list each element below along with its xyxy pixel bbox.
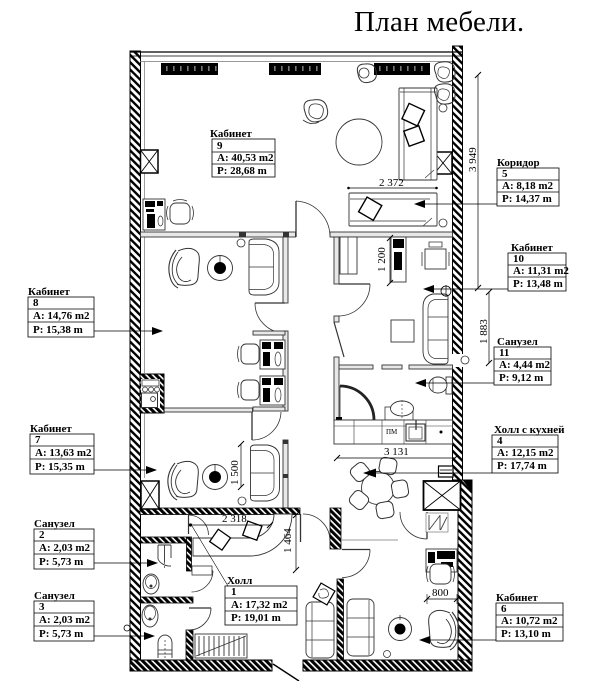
svg-text:1 200: 1 200 [376,247,388,272]
svg-text:Холл с кухней: Холл с кухней [494,424,565,436]
svg-text:Кабинет: Кабинет [210,128,252,140]
svg-text:A: 11,31 m2: A: 11,31 m2 [513,265,569,277]
svg-text:1 464: 1 464 [282,528,294,553]
svg-text:P: 13,48 m: P: 13,48 m [513,278,563,290]
svg-text:A: 17,32 m2: A: 17,32 m2 [231,599,288,611]
svg-text:2: 2 [39,529,45,541]
svg-text:5: 5 [502,168,508,180]
svg-text:P: 14,37 m: P: 14,37 m [502,193,552,205]
svg-text:4: 4 [497,435,503,447]
svg-text:A: 12,15 m2: A: 12,15 m2 [497,447,554,459]
svg-text:P: 13,10 m: P: 13,10 m [501,628,551,640]
svg-text:P: 9,12 m: P: 9,12 m [499,372,543,384]
svg-text:A: 8,18 m2: A: 8,18 m2 [502,180,554,192]
svg-text:A: 2,03 m2: A: 2,03 m2 [39,614,91,626]
svg-text:P: 15,35 m: P: 15,35 m [35,461,85,473]
svg-text:A: 13,63 m2: A: 13,63 m2 [35,447,92,459]
svg-text:P: 28,68 m: P: 28,68 m [217,165,267,177]
svg-text:A: 10,72 m2: A: 10,72 m2 [501,615,558,627]
svg-text:2 372: 2 372 [379,177,404,189]
svg-text:ПМ: ПМ [386,428,398,436]
svg-text:3 949: 3 949 [467,147,479,172]
svg-text:3 131: 3 131 [384,446,409,458]
svg-text:800: 800 [432,587,449,599]
svg-text:A: 40,53 m2: A: 40,53 m2 [217,152,274,164]
svg-text:7: 7 [35,434,41,446]
svg-text:A: 4,44 m2: A: 4,44 m2 [499,359,551,371]
svg-text:3: 3 [39,601,45,613]
svg-text:P: 19,01 m: P: 19,01 m [231,612,281,624]
svg-text:План мебели.: План мебели. [354,6,524,38]
svg-text:1: 1 [231,586,237,598]
svg-text:1 883: 1 883 [478,319,490,344]
svg-text:2 318: 2 318 [222,513,247,525]
svg-text:11: 11 [499,347,509,359]
svg-text:8: 8 [33,297,39,309]
svg-text:P: 17,74 m: P: 17,74 m [497,460,547,472]
svg-text:10: 10 [513,253,525,265]
svg-text:P: 15,38 m: P: 15,38 m [33,324,83,336]
svg-text:6: 6 [501,603,507,615]
svg-text:9: 9 [217,140,223,152]
svg-text:A: 14,76 m2: A: 14,76 m2 [33,310,90,322]
svg-text:P: 5,73 m: P: 5,73 m [39,628,83,640]
svg-text:A: 2,03 m2: A: 2,03 m2 [39,542,91,554]
svg-text:P: 5,73 m: P: 5,73 m [39,556,83,568]
svg-text:1 500: 1 500 [229,460,241,485]
